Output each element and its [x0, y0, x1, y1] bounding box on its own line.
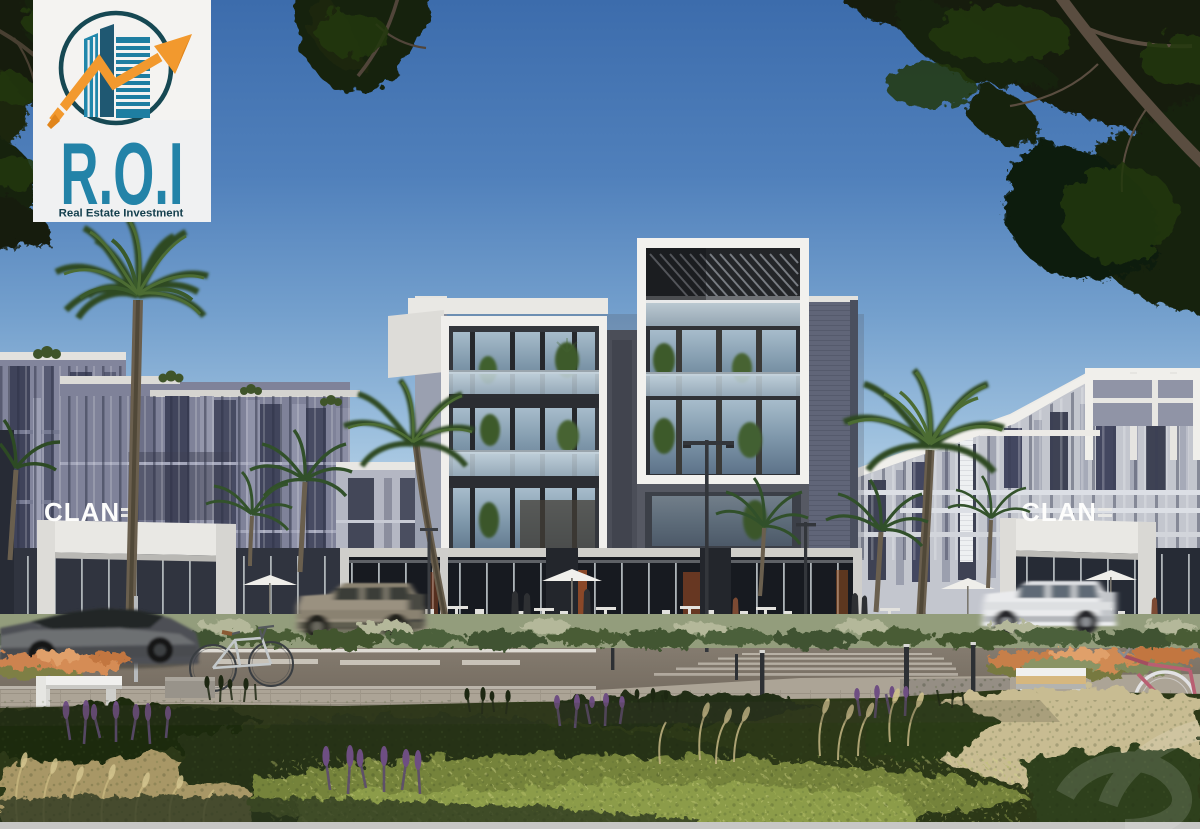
- svg-text:CLAN: CLAN: [1021, 497, 1097, 527]
- svg-text:Real Estate Investment: Real Estate Investment: [59, 208, 184, 220]
- svg-text:CLAN: CLAN: [44, 497, 120, 527]
